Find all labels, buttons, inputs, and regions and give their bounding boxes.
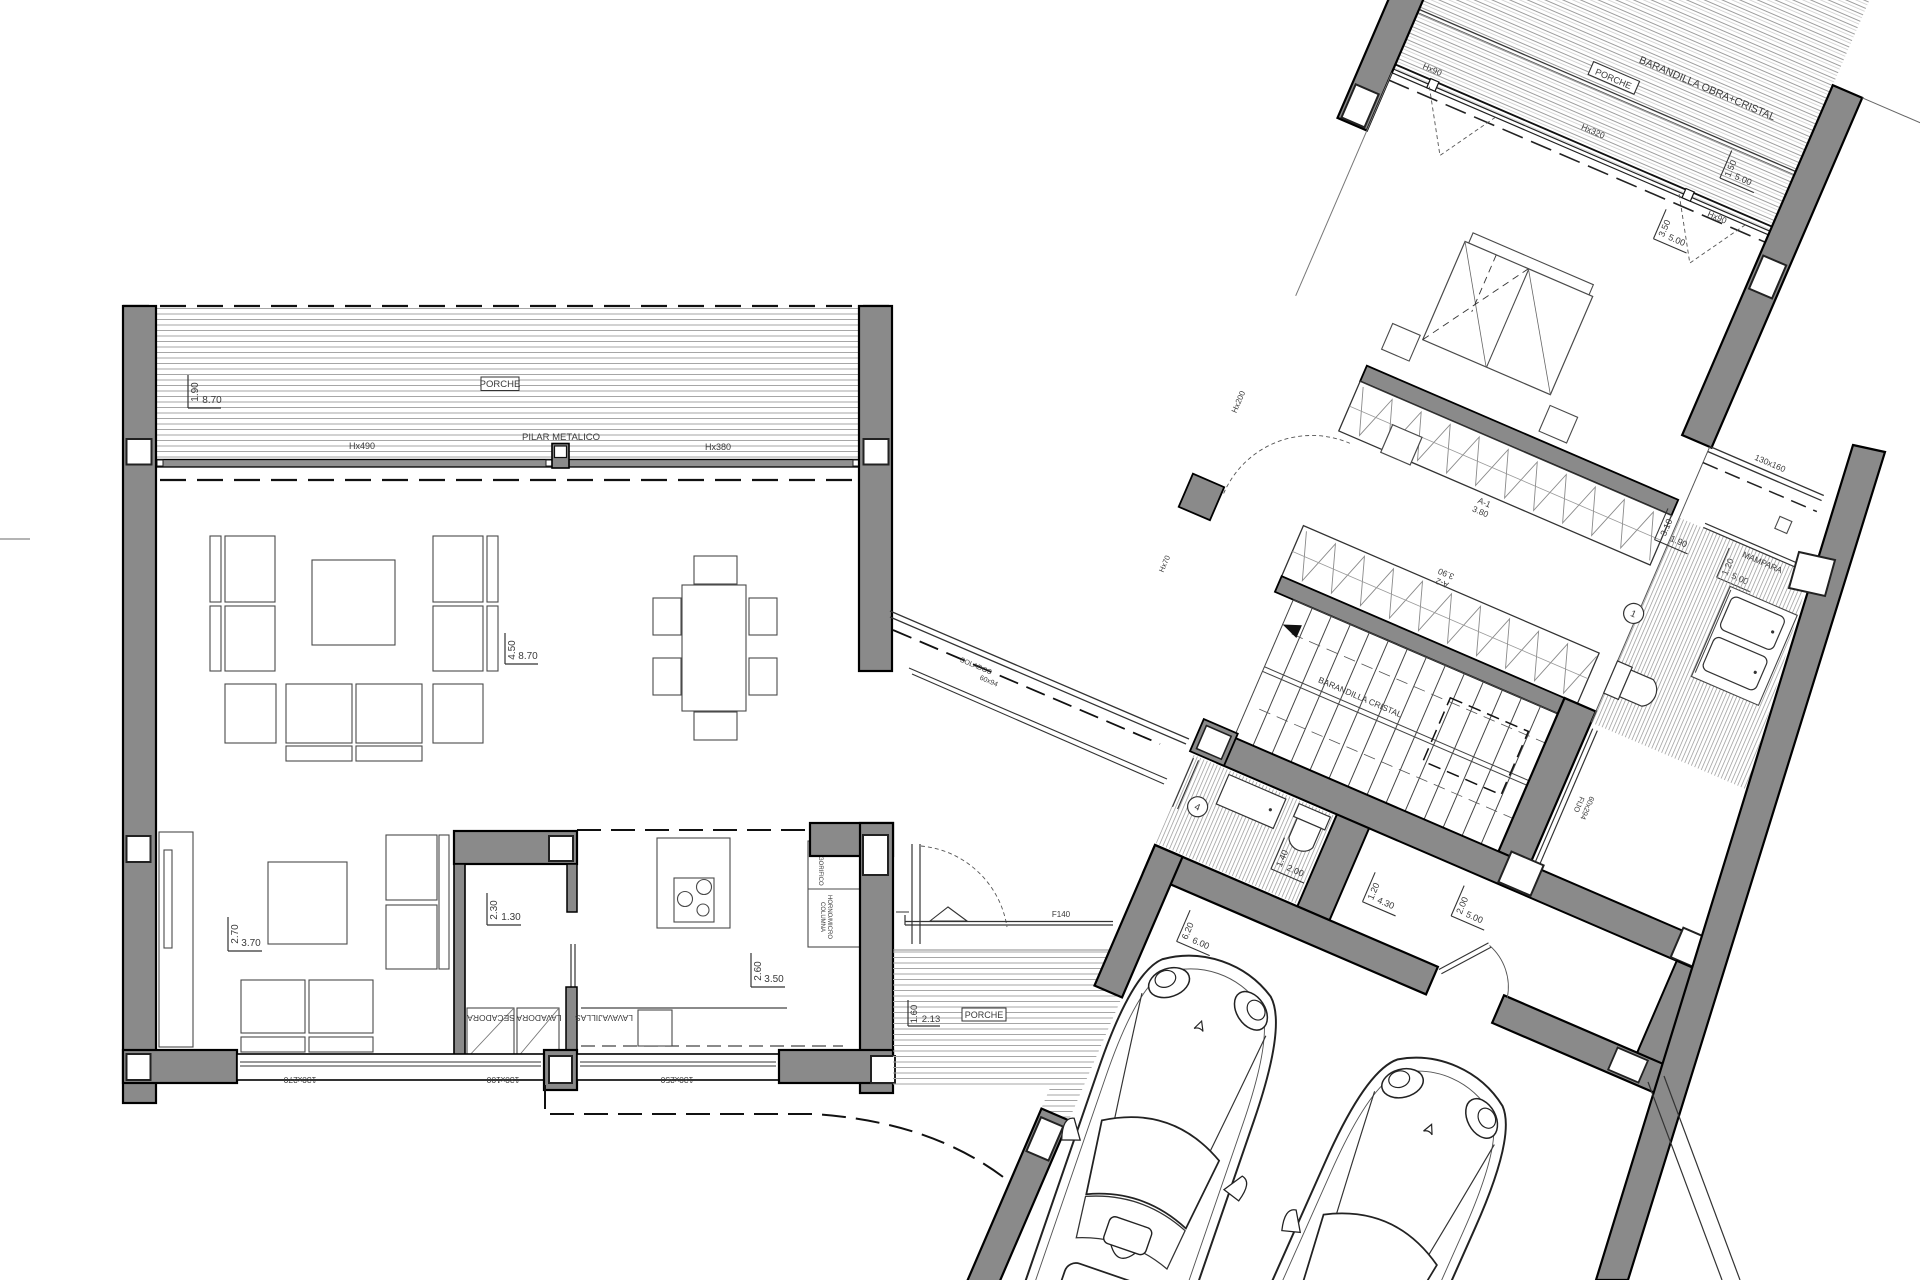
svg-text:2.70: 2.70: [230, 924, 241, 944]
svg-text:2.60: 2.60: [753, 961, 764, 981]
svg-text:3.50: 3.50: [764, 974, 784, 985]
svg-text:HORNO/MICRO: HORNO/MICRO: [826, 895, 832, 939]
svg-text:Hx490: Hx490: [349, 441, 375, 451]
svg-text:COLUMNA: COLUMNA: [819, 902, 825, 932]
svg-text:8.70: 8.70: [202, 395, 222, 406]
svg-text:LAVAVAJILLAS: LAVAVAJILLAS: [575, 1013, 633, 1023]
svg-text:F140: F140: [1052, 910, 1071, 919]
svg-text:PORCHE: PORCHE: [965, 1010, 1004, 1020]
svg-text:130x270: 130x270: [283, 1075, 316, 1085]
svg-text:1.30: 1.30: [501, 912, 521, 923]
svg-text:1.90: 1.90: [190, 382, 201, 402]
svg-text:2.13: 2.13: [922, 1014, 941, 1025]
svg-text:Hx380: Hx380: [705, 442, 731, 452]
svg-text:4.50: 4.50: [507, 640, 518, 660]
svg-text:8.70: 8.70: [518, 651, 538, 662]
svg-text:PORCHE: PORCHE: [480, 379, 521, 390]
svg-text:SECADORA: SECADORA: [467, 1013, 515, 1023]
svg-text:130x250: 130x250: [660, 1075, 693, 1085]
svg-text:2.30: 2.30: [489, 900, 500, 920]
svg-text:LAVADORA: LAVADORA: [516, 1013, 561, 1023]
svg-text:130x100: 130x100: [486, 1075, 519, 1085]
svg-text:3.70: 3.70: [241, 938, 261, 949]
svg-text:PILAR METALICO: PILAR METALICO: [522, 432, 600, 443]
svg-text:1.60: 1.60: [909, 1005, 920, 1024]
